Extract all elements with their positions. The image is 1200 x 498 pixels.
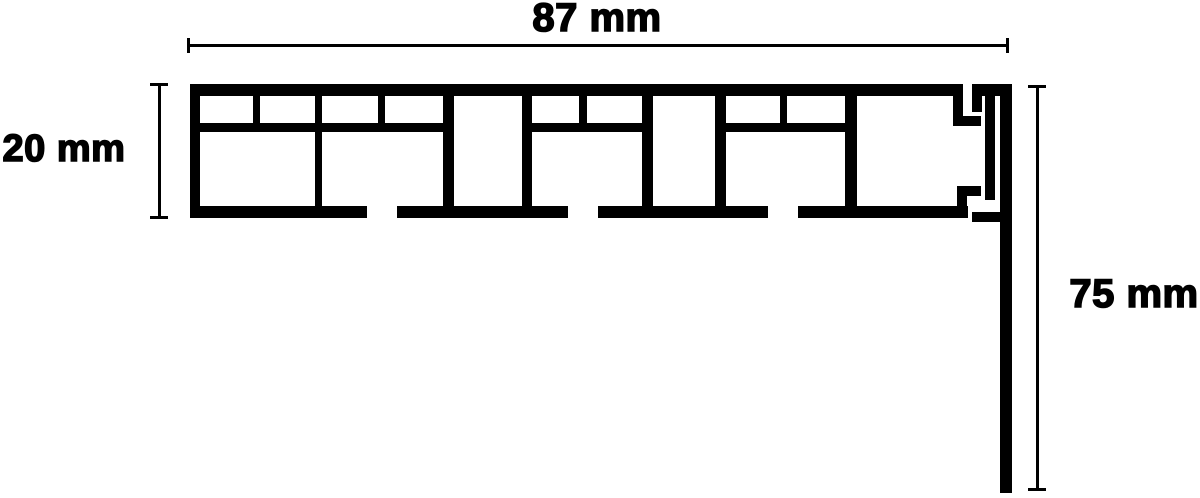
thickness-dimension-tick-bottom bbox=[150, 216, 168, 219]
dimension-thickness bbox=[150, 83, 168, 219]
profile-divider-full-height-1 bbox=[315, 84, 322, 218]
profile-bottom-wall-segment-3 bbox=[598, 206, 768, 218]
bracket-top-leg bbox=[972, 96, 982, 112]
profile-bottom-wall-segment-4 bbox=[798, 206, 968, 218]
dimension-width bbox=[187, 38, 1009, 53]
profile-divider-full-height-4 bbox=[642, 84, 653, 218]
profile-bottom-hook-leg bbox=[957, 186, 967, 206]
diagram-canvas: 87 mm 20 mm 75 mm bbox=[0, 0, 1200, 498]
end-bracket-with-overhang bbox=[972, 84, 1012, 493]
width-dimension-tick-left bbox=[187, 38, 190, 53]
profile-divider-full-height-3 bbox=[522, 84, 532, 218]
profile-divider-top-row-2 bbox=[378, 84, 385, 132]
profile-divider-top-row-3 bbox=[579, 84, 587, 132]
profile-cross-section bbox=[190, 84, 981, 218]
bracket-right-wall-overhang bbox=[1000, 84, 1012, 493]
profile-bottom-wall-segment-2 bbox=[397, 206, 568, 218]
profile-mid-divider-segment-2 bbox=[522, 123, 653, 132]
profile-bottom-wall-segment-1 bbox=[190, 206, 367, 218]
profile-divider-full-height-5 bbox=[715, 84, 726, 218]
thickness-dimension-line bbox=[158, 84, 161, 218]
profile-technical-drawing: 87 mm 20 mm 75 mm bbox=[0, 0, 1200, 498]
profile-top-hook-arm bbox=[953, 116, 981, 126]
thickness-dimension-tick-top bbox=[150, 83, 168, 86]
profile-divider-full-height-2 bbox=[443, 84, 454, 218]
profile-left-wall bbox=[190, 84, 200, 218]
width-dimension-line bbox=[189, 44, 1008, 47]
width-dimension-label: 87 mm bbox=[532, 0, 661, 40]
profile-divider-top-row-4 bbox=[780, 84, 787, 132]
drop-dimension-label: 75 mm bbox=[1069, 272, 1198, 316]
bracket-clip-bar bbox=[985, 96, 995, 200]
drop-dimension-tick-bottom bbox=[1028, 488, 1046, 491]
drop-dimension-line bbox=[1036, 86, 1039, 490]
drop-dimension-tick-top bbox=[1028, 85, 1046, 88]
profile-divider-full-height-6 bbox=[845, 84, 857, 218]
width-dimension-tick-right bbox=[1006, 38, 1009, 53]
dimension-drop bbox=[1028, 85, 1046, 491]
thickness-dimension-label: 20 mm bbox=[3, 128, 126, 170]
profile-divider-top-row-1 bbox=[253, 84, 260, 132]
